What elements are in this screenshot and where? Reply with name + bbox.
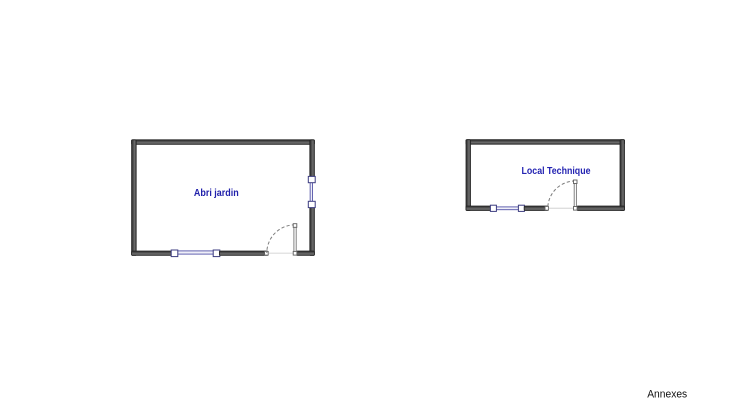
svg-text:Annexes: Annexes [647, 388, 687, 400]
svg-text:Local Technique: Local Technique [522, 166, 591, 177]
svg-text:Abri jardin: Abri jardin [194, 188, 239, 199]
